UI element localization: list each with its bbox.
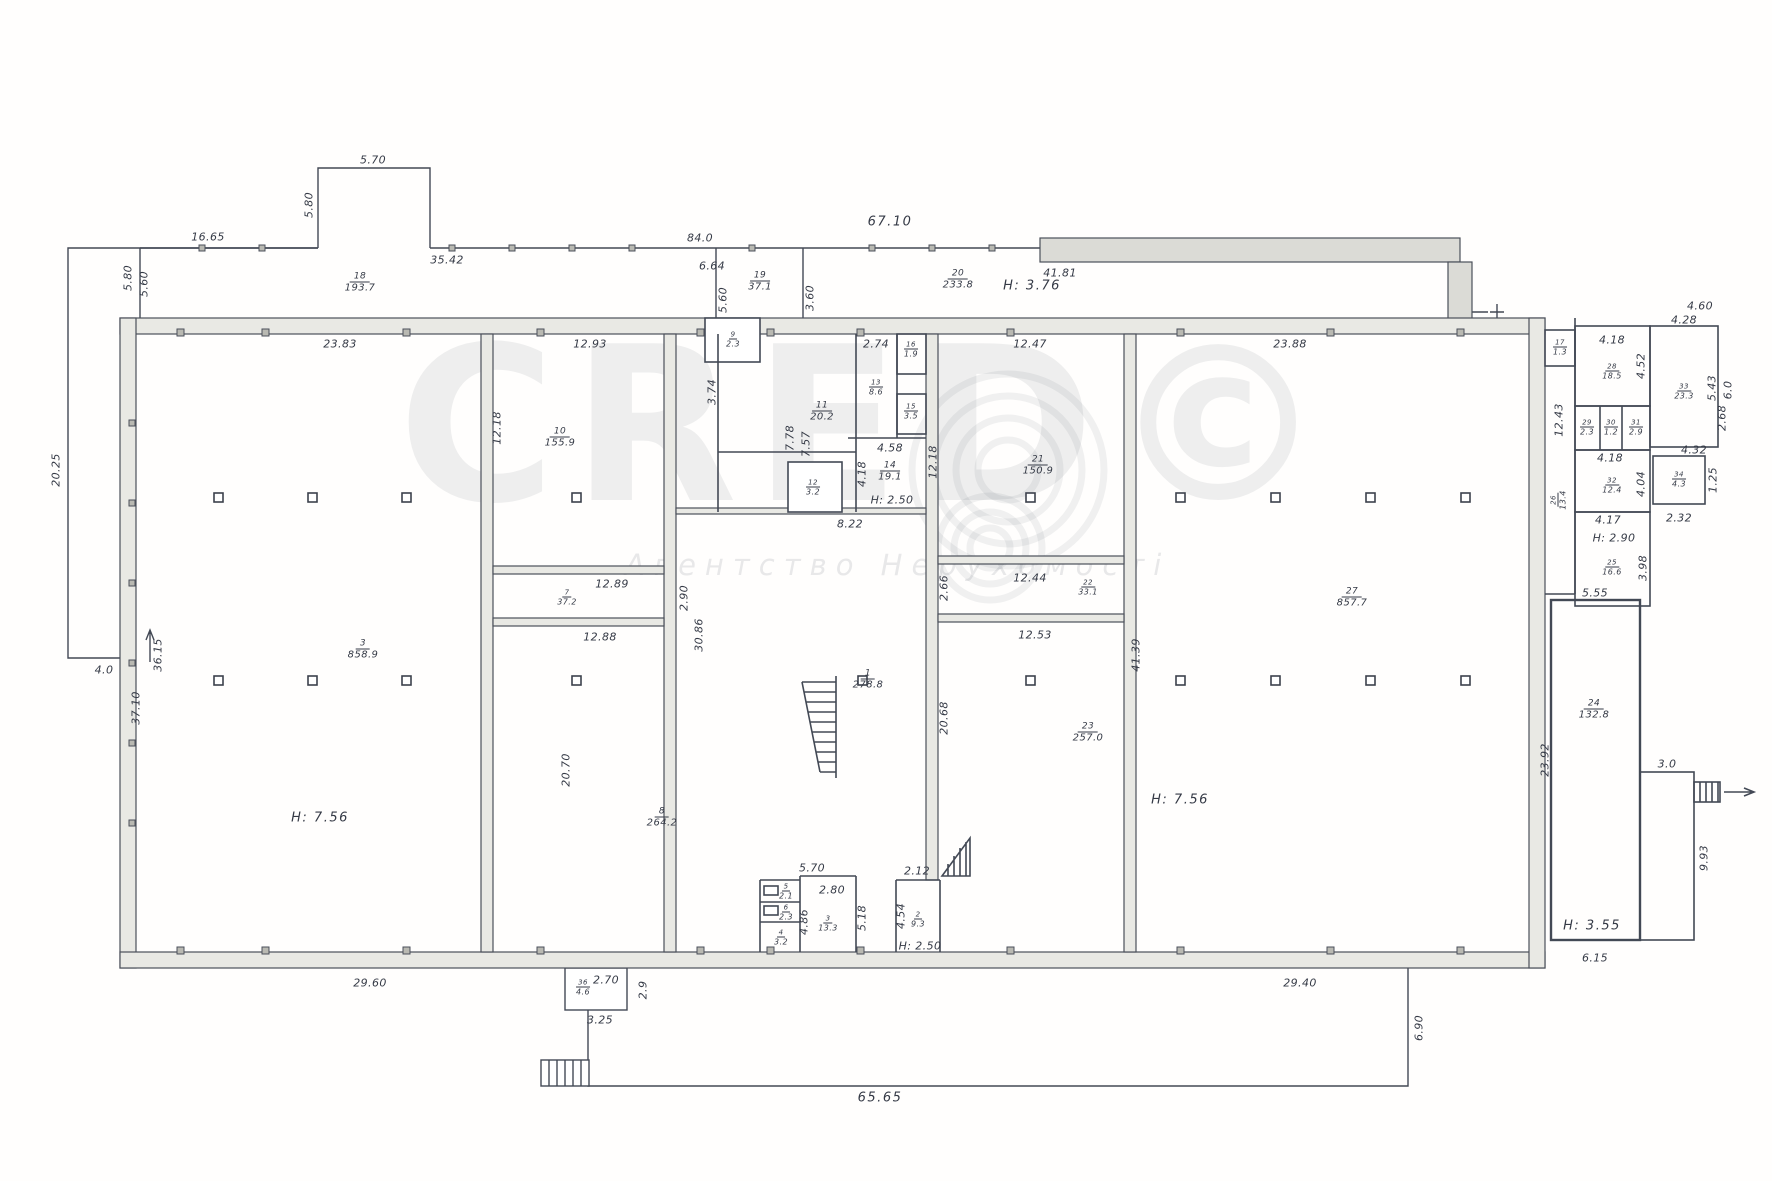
dim-2-74: 2.74 [863,339,889,350]
room-label-3b: 313.3 [818,916,837,933]
floor-plan-drawing [0,0,1772,1181]
dim-12-43: 12.43 [1554,403,1565,437]
dim-67-10: 67.10 [868,216,913,229]
dim-5-43: 5.43 [1707,375,1718,401]
room-label-17: 171.3 [1553,340,1567,357]
dim-29-60: 29.60 [353,978,387,989]
dim-84-0: 84.0 [687,233,713,244]
dim-7-57: 7.57 [801,431,812,457]
dim-4-58: 4.58 [877,443,903,454]
dim-65-65: 65.65 [858,1092,903,1105]
dim-5-80-annex: 5.80 [304,192,315,218]
dim-20-25: 20.25 [51,453,62,487]
dim-5-70-bottom: 5.70 [799,863,825,874]
dim-2-90: 2.90 [679,585,690,611]
dim-30-86: 30.86 [694,618,705,652]
dim-9-93: 9.93 [1699,845,1710,871]
dim-7-78: 7.78 [785,425,796,451]
dim-4-17: 4.17 [1595,515,1621,526]
dim-29-40: 29.40 [1283,978,1317,989]
dim-6-90: 6.90 [1414,1015,1425,1041]
dim-4-18-room14: 4.18 [857,461,868,487]
dim-2-12: 2.12 [904,866,930,877]
dim-12-18-wall: 12.18 [928,445,939,479]
dim-36-15: 36.15 [153,638,164,672]
room-label-19: 1937.1 [748,272,772,293]
dim-4-52: 4.52 [1636,353,1647,379]
room-label-4: 43.2 [774,930,788,947]
dim-3-60: 3.60 [805,285,816,311]
dim-5-80-strip: 5.80 [123,265,134,291]
room-label-13: 138.6 [869,380,883,397]
dim-3-25: 3.25 [587,1015,613,1026]
room-label-6: 62.3 [779,905,793,922]
dim-3-74: 3.74 [707,379,718,405]
watermark-circles [912,374,1104,600]
room-label-24: 24132.8 [1579,700,1610,721]
height-3-76: H: 3.76 [1003,280,1061,293]
room-label-32: 3212.4 [1602,478,1621,495]
dim-23-83: 23.83 [323,339,357,350]
room-label-31: 312.9 [1629,420,1643,437]
room-label-29: 292.3 [1580,420,1594,437]
room-label-12: 123.2 [806,480,820,497]
dim-6-0: 6.0 [1723,381,1734,400]
room-label-28: 2818.5 [1602,364,1621,381]
room-label-22: 2233.1 [1078,580,1097,597]
dim-1-25: 1.25 [1708,467,1719,493]
dim-16-65: 16.65 [191,232,225,243]
dim-4-86: 4.86 [799,909,810,935]
height-2-50-room2: H: 2.50 [899,941,942,952]
room-label-9: 92.3 [726,332,740,349]
room-label-1: 1278.8 [853,670,884,691]
room-label-26: 2613.4 [1551,490,1568,509]
dim-20-68: 20.68 [939,701,950,735]
dim-5-60-strip: 5.60 [139,271,150,297]
dim-3-98: 3.98 [1638,555,1649,581]
dim-37-10: 37.10 [131,691,142,725]
dim-4-0: 4.0 [95,665,114,676]
room-label-16: 161.9 [904,342,918,359]
dim-2-70: 2.70 [593,975,619,986]
dim-12-44: 12.44 [1013,573,1047,584]
dim-35-42: 35.42 [430,255,464,266]
dim-12-88: 12.88 [583,632,617,643]
room-label-23: 23257.0 [1073,723,1104,744]
dim-12-18-room10: 12.18 [492,411,503,445]
dim-12-89: 12.89 [595,579,629,590]
dim-41-39: 41.39 [1131,638,1142,672]
room-label-2: 29.3 [911,912,925,929]
dim-4-32: 4.32 [1681,445,1707,456]
room-label-8: 8264.2 [647,808,678,829]
dim-5-55: 5.55 [1582,588,1608,599]
room-label-3: 3858.9 [348,640,379,661]
room-label-33: 3323.3 [1674,384,1693,401]
dim-4-28: 4.28 [1671,315,1697,326]
room-label-7: 737.2 [557,590,576,607]
room-label-27: 27857.7 [1337,588,1368,609]
dim-12-93: 12.93 [573,339,607,350]
dim-4-18-room28: 4.18 [1599,335,1625,346]
room-label-20: 20233.8 [943,270,974,291]
dim-12-47: 12.47 [1013,339,1047,350]
dim-2-80: 2.80 [819,885,845,896]
room-label-30: 301.2 [1604,420,1618,437]
height-2-50-room14: H: 2.50 [871,495,914,506]
room-label-25: 2516.6 [1602,560,1621,577]
height-2-90: H: 2.90 [1593,533,1636,544]
dim-4-54: 4.54 [896,903,907,929]
height-7-56-right: H: 7.56 [1151,794,1209,807]
dim-3-0: 3.0 [1658,759,1677,770]
dim-6-15: 6.15 [1582,953,1608,964]
room-label-11: 1120.2 [810,402,834,423]
dim-41-81: 41.81 [1043,268,1077,279]
dim-2-66: 2.66 [939,575,950,601]
room-label-10: 10155.9 [545,428,576,449]
dim-4-04: 4.04 [1636,471,1647,497]
gray-band-wall [1040,238,1472,320]
wall-ticks [129,245,1464,954]
dim-20-70: 20.70 [561,753,572,787]
dim-4-18-room32: 4.18 [1597,453,1623,464]
dim-2-68: 2.68 [1717,405,1728,431]
dim-6-64: 6.64 [699,261,725,272]
dim-4-60: 4.60 [1687,301,1713,312]
dim-5-60-room19: 5.60 [718,287,729,313]
floor-plan-page: CRED© Агентство Нерухомості [0,0,1772,1181]
height-3-55: H: 3.55 [1563,920,1621,933]
dim-23-88: 23.88 [1273,339,1307,350]
height-7-56-left: H: 7.56 [291,812,349,825]
room-label-15: 153.5 [904,404,918,421]
dim-12-53: 12.53 [1018,630,1052,641]
dim-2-9: 2.9 [638,981,649,1000]
room-label-18: 18193.7 [345,273,376,294]
room-label-5: 52.1 [779,884,793,901]
room-label-36: 364.6 [576,980,590,997]
room-label-14: 1419.1 [878,462,902,483]
dim-5-70: 5.70 [360,155,386,166]
outer-contour [68,168,1504,1086]
room-label-21: 21150.9 [1023,456,1054,477]
room-label-34: 344.3 [1672,472,1686,489]
dim-5-18: 5.18 [857,905,868,931]
dim-8-22: 8.22 [837,519,863,530]
dim-23-92: 23.92 [1540,743,1551,777]
dim-2-32: 2.32 [1666,513,1692,524]
